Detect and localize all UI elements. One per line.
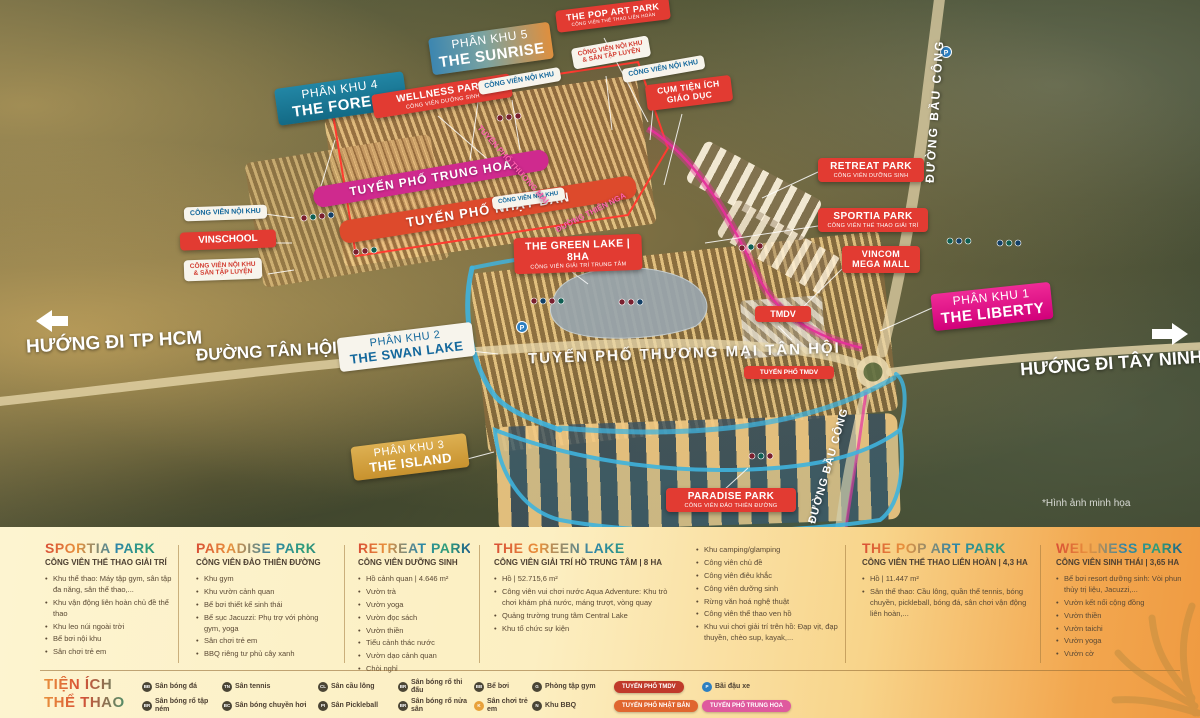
panel-column-paradise: PARADISE PARK CÔNG VIÊN ĐẢO THIÊN ĐƯỜNG … — [196, 540, 334, 662]
column-subtitle: CÔNG VIÊN GIẢI TRÍ HỒ TRUNG TÂM | 8 HA — [494, 558, 674, 567]
mall-subname: MEGA MALL — [848, 259, 914, 269]
street-pill-tmdv: TUYẾN PHỐ TMDV — [614, 681, 684, 693]
column-title: THE GREEN LAKE — [494, 540, 674, 556]
amenity-list: Hồ | 52.715,6 m² Công viên vui chơi nước… — [494, 574, 674, 634]
label-tuyen-pho-tmdv: TUYẾN PHỐ TMDV — [744, 366, 834, 379]
parking-icon: P — [702, 682, 712, 692]
list-item: Bể bơi resort dưỡng sinh: Vòi phun thủy … — [1056, 574, 1184, 596]
label-tmdv: TMDV — [755, 306, 811, 322]
park-label-sportia: SPORTIA PARK CÔNG VIÊN THỂ THAO GIẢI TRÍ — [818, 208, 928, 232]
panel-column-pop-art: THE POP ART PARK CÔNG VIÊN THỂ THAO LIÊN… — [862, 540, 1030, 622]
panel-column-retreat: RETREAT PARK CÔNG VIÊN DƯỠNG SINH Hồ cản… — [358, 540, 470, 677]
column-title: SPORTIA PARK — [45, 540, 175, 556]
list-item: Khu camping/glamping — [696, 545, 838, 556]
column-title: THE POP ART PARK — [862, 540, 1030, 556]
list-item: Sân chơi trẻ em — [45, 647, 175, 658]
legend-label: Sân chơi trẻ em — [487, 698, 532, 713]
legend-label: Khu BBQ — [545, 702, 576, 710]
list-item: BBQ riêng tư phủ cây xanh — [196, 649, 334, 660]
column-title: RETREAT PARK — [358, 540, 470, 556]
column-subtitle: CÔNG VIÊN THỂ THAO LIÊN HOÀN | 4,3 HA — [862, 558, 1030, 567]
list-item: Công viên thể thao ven hồ — [696, 609, 838, 620]
list-item: Hồ | 11.447 m² — [862, 574, 1030, 585]
list-item: Hồ cảnh quan | 4.646 m² — [358, 574, 470, 585]
column-subtitle: CÔNG VIÊN SINH THÁI | 3,65 HA — [1056, 558, 1184, 567]
legend-grid: BĐ Sân bóng đá TN Sân tennis CL Sân cầu … — [142, 677, 794, 715]
list-item: Bể bơi thiết kế sinh thái — [196, 600, 334, 611]
list-item: Vườn yoga — [358, 600, 470, 611]
list-item: Hồ | 52.715,6 m² — [494, 574, 674, 585]
street-pill-nhat-ban: TUYẾN PHỐ NHẬT BẢN — [614, 700, 698, 712]
panel-column-sportia: SPORTIA PARK CÔNG VIÊN THỂ THAO GIẢI TRÍ… — [45, 540, 175, 660]
gym-icon: G — [532, 682, 542, 692]
roundabout — [860, 359, 886, 385]
football-icon: BĐ — [142, 682, 152, 692]
panel-column-green-lake: THE GREEN LAKE CÔNG VIÊN GIẢI TRÍ HỒ TRU… — [494, 540, 674, 636]
legend-item-volleyball: BC Sân bóng chuyền hơi — [222, 701, 318, 711]
park-label-vincom: VINCOM MEGA MALL — [842, 246, 920, 273]
label-vinschool: VINSCHOOL — [180, 229, 277, 250]
list-item: Khu leo núi ngoài trời — [45, 622, 175, 633]
park-label-retreat: RETREAT PARK CÔNG VIÊN DƯỠNG SINH — [818, 158, 924, 182]
tennis-icon: TN — [222, 682, 232, 692]
list-item: Sân chơi trẻ em — [196, 636, 334, 647]
list-item: Vườn dạo cảnh quan — [358, 651, 470, 662]
legend-item-pickleball: PI Sân Pickleball — [318, 701, 398, 711]
pickleball-icon: PI — [318, 701, 328, 711]
list-item: Khu tổ chức sự kiện — [494, 624, 674, 635]
amenity-list: Hồ cảnh quan | 4.646 m² Vườn trà Vườn yo… — [358, 574, 470, 675]
column-subtitle: CÔNG VIÊN ĐẢO THIÊN ĐƯỜNG — [196, 558, 334, 567]
legend-label: Bãi đậu xe — [715, 683, 750, 691]
label-cv-noi-khu-san-tap-left: CÔNG VIÊN NỘI KHU & SÂN TẬP LUYỆN — [184, 258, 262, 282]
column-title: WELLNESS PARK — [1056, 540, 1184, 556]
legend-item-parking: P Bãi đậu xe — [702, 682, 794, 692]
bbq-icon: N — [532, 701, 542, 711]
watermark-note: *Hình ảnh minh họa — [1042, 498, 1130, 509]
list-item: Khu gym — [196, 574, 334, 585]
legend-item-pill-nhat-ban: TUYẾN PHỐ NHẬT BẢN — [614, 700, 702, 712]
label-line: & SÂN TẬP LUYỆN — [190, 268, 256, 278]
pool-icon: BB — [474, 682, 484, 692]
panel-divider — [178, 545, 179, 663]
list-item: Vườn trà — [358, 587, 470, 598]
park-label-green-lake: THE GREEN LAKE | 8HA CÔNG VIÊN GIẢI TRÍ … — [513, 234, 642, 275]
playground-icon: K — [474, 701, 484, 711]
arrow-left-icon — [36, 310, 68, 332]
legend-item-badminton: CL Sân cầu lông — [318, 682, 398, 692]
list-item: Quảng trường trung tâm Central Lake — [494, 611, 674, 622]
list-item: Khu vận động liên hoàn chủ đề thể thao — [45, 598, 175, 620]
legend-item-pool: BB Bể bơi — [474, 682, 532, 692]
list-item: Sân thể thao: Cầu lông, quần thể tennis,… — [862, 587, 1030, 620]
arrow-right-icon — [1152, 323, 1188, 345]
basketball-icon: BR — [398, 701, 408, 711]
legend-item-bbq: N Khu BBQ — [532, 701, 614, 711]
amenity-list: Khu camping/glamping Công viên chủ đề Cô… — [696, 545, 838, 644]
panel-divider — [479, 545, 480, 663]
list-item: Vườn thiền — [358, 626, 470, 637]
legend-label: Sân bóng rổ nửa sân — [411, 698, 474, 713]
column-title: PARADISE PARK — [196, 540, 334, 556]
list-item: Khu thể thao: Máy tập gym, sân tập đa nă… — [45, 574, 175, 596]
list-item: Công viên vui chơi nước Aqua Adventure: … — [494, 587, 674, 609]
park-subname: CÔNG VIÊN ĐẢO THIÊN ĐƯỜNG — [672, 503, 790, 509]
list-item: Tiểu cảnh thác nước — [358, 638, 470, 649]
legend-label: Sân tennis — [235, 683, 270, 691]
legend-label: Bể bơi — [487, 683, 509, 691]
panel-divider — [344, 545, 345, 663]
panel-divider — [1040, 545, 1041, 663]
mall-name: VINCOM — [848, 249, 914, 259]
legend-label: Sân Pickleball — [331, 702, 378, 710]
legend-title-line2: THỂ THAO — [44, 694, 136, 712]
amenities-panel: SPORTIA PARK CÔNG VIÊN THỂ THAO GIẢI TRÍ… — [0, 527, 1200, 718]
volleyball-icon: BC — [222, 701, 232, 711]
panel-divider — [845, 545, 846, 663]
masterplan-screenshot: P P TUYẾN PHỐ TRUNG HOA TUYẾN PHỐ NHẬT B… — [0, 0, 1200, 718]
park-subname: CÔNG VIÊN DƯỠNG SINH — [824, 173, 918, 179]
park-name: SPORTIA PARK — [824, 211, 922, 223]
canal-east — [896, 374, 905, 430]
amenity-list: Khu gym Khu vườn cảnh quan Bể bơi thiết … — [196, 574, 334, 660]
list-item: Bể sục Jacuzzi: Phụ trợ với phòng gym, y… — [196, 613, 334, 635]
column-subtitle: CÔNG VIÊN DƯỠNG SINH — [358, 558, 470, 567]
column-subtitle: CÔNG VIÊN THỂ THAO GIẢI TRÍ — [45, 558, 175, 567]
park-name: PARADISE PARK — [672, 491, 790, 503]
legend-label: Sân bóng đá — [155, 683, 197, 691]
basketball-icon: BR — [142, 701, 152, 711]
legend-item-basketball-half: BR Sân bóng rổ nửa sân — [398, 698, 474, 713]
legend-item-basketball-match: BR Sân bóng rổ thi đấu — [398, 679, 474, 694]
legend-label: Sân bóng chuyền hơi — [235, 702, 306, 710]
panel-column-lake-extra: Khu camping/glamping Công viên chủ đề Cô… — [696, 545, 838, 646]
label-cong-vien-noi-khu-left: CÔNG VIÊN NỘI KHU — [184, 205, 267, 222]
legend-item-pill-tmdv: TUYẾN PHỐ TMDV — [614, 681, 702, 693]
legend-item-football: BĐ Sân bóng đá — [142, 682, 222, 692]
list-item: Công viên chủ đề — [696, 558, 838, 569]
amenity-list: Hồ | 11.447 m² Sân thể thao: Cầu lông, q… — [862, 574, 1030, 620]
legend-label: Phòng tập gym — [545, 683, 596, 691]
legend-label: Sân bóng rổ tập ném — [155, 698, 222, 713]
legend-separator — [40, 670, 1180, 671]
sports-amenities-legend: TIỆN ÍCH THỂ THAO BĐ Sân bóng đá TN Sân … — [44, 676, 794, 715]
street-pill-trung-hoa: TUYẾN PHỐ TRUNG HOA — [702, 700, 791, 712]
legend-item-basketball-practice: BR Sân bóng rổ tập ném — [142, 698, 222, 713]
list-item: Công viên điêu khắc — [696, 571, 838, 582]
badminton-icon: CL — [318, 682, 328, 692]
list-item: Rừng văn hoá nghệ thuật — [696, 597, 838, 608]
park-subname: CÔNG VIÊN THỂ THAO GIẢI TRÍ — [824, 223, 922, 229]
list-item: Công viên dưỡng sinh — [696, 584, 838, 595]
aerial-masterplan-map: P P TUYẾN PHỐ TRUNG HOA TUYẾN PHỐ NHẬT B… — [0, 0, 1200, 527]
park-label-paradise: PARADISE PARK CÔNG VIÊN ĐẢO THIÊN ĐƯỜNG — [666, 488, 796, 512]
legend-item-pill-trung-hoa: TUYẾN PHỐ TRUNG HOA — [702, 700, 794, 712]
amenity-list: Khu thể thao: Máy tập gym, sân tập đa nă… — [45, 574, 175, 658]
parking-icon: P — [520, 325, 525, 332]
legend-item-playground: K Sân chơi trẻ em — [474, 698, 532, 713]
basketball-icon: BR — [398, 682, 408, 692]
list-item: Bể bơi nội khu — [45, 634, 175, 645]
legend-title: TIỆN ÍCH THỂ THAO — [44, 676, 136, 712]
legend-label: Sân cầu lông — [331, 683, 375, 691]
legend-item-gym: G Phòng tập gym — [532, 682, 614, 692]
list-item: Vườn đọc sách — [358, 613, 470, 624]
legend-item-tennis: TN Sân tennis — [222, 682, 318, 692]
park-name: RETREAT PARK — [824, 161, 918, 173]
legend-title-line1: TIỆN ÍCH — [44, 676, 136, 694]
list-item: Khu vườn cảnh quan — [196, 587, 334, 598]
list-item: Khu vui chơi giải trí trên hồ: Đạp vịt, … — [696, 622, 838, 644]
legend-label: Sân bóng rổ thi đấu — [411, 679, 474, 694]
palm-frond-decoration — [1080, 598, 1200, 718]
